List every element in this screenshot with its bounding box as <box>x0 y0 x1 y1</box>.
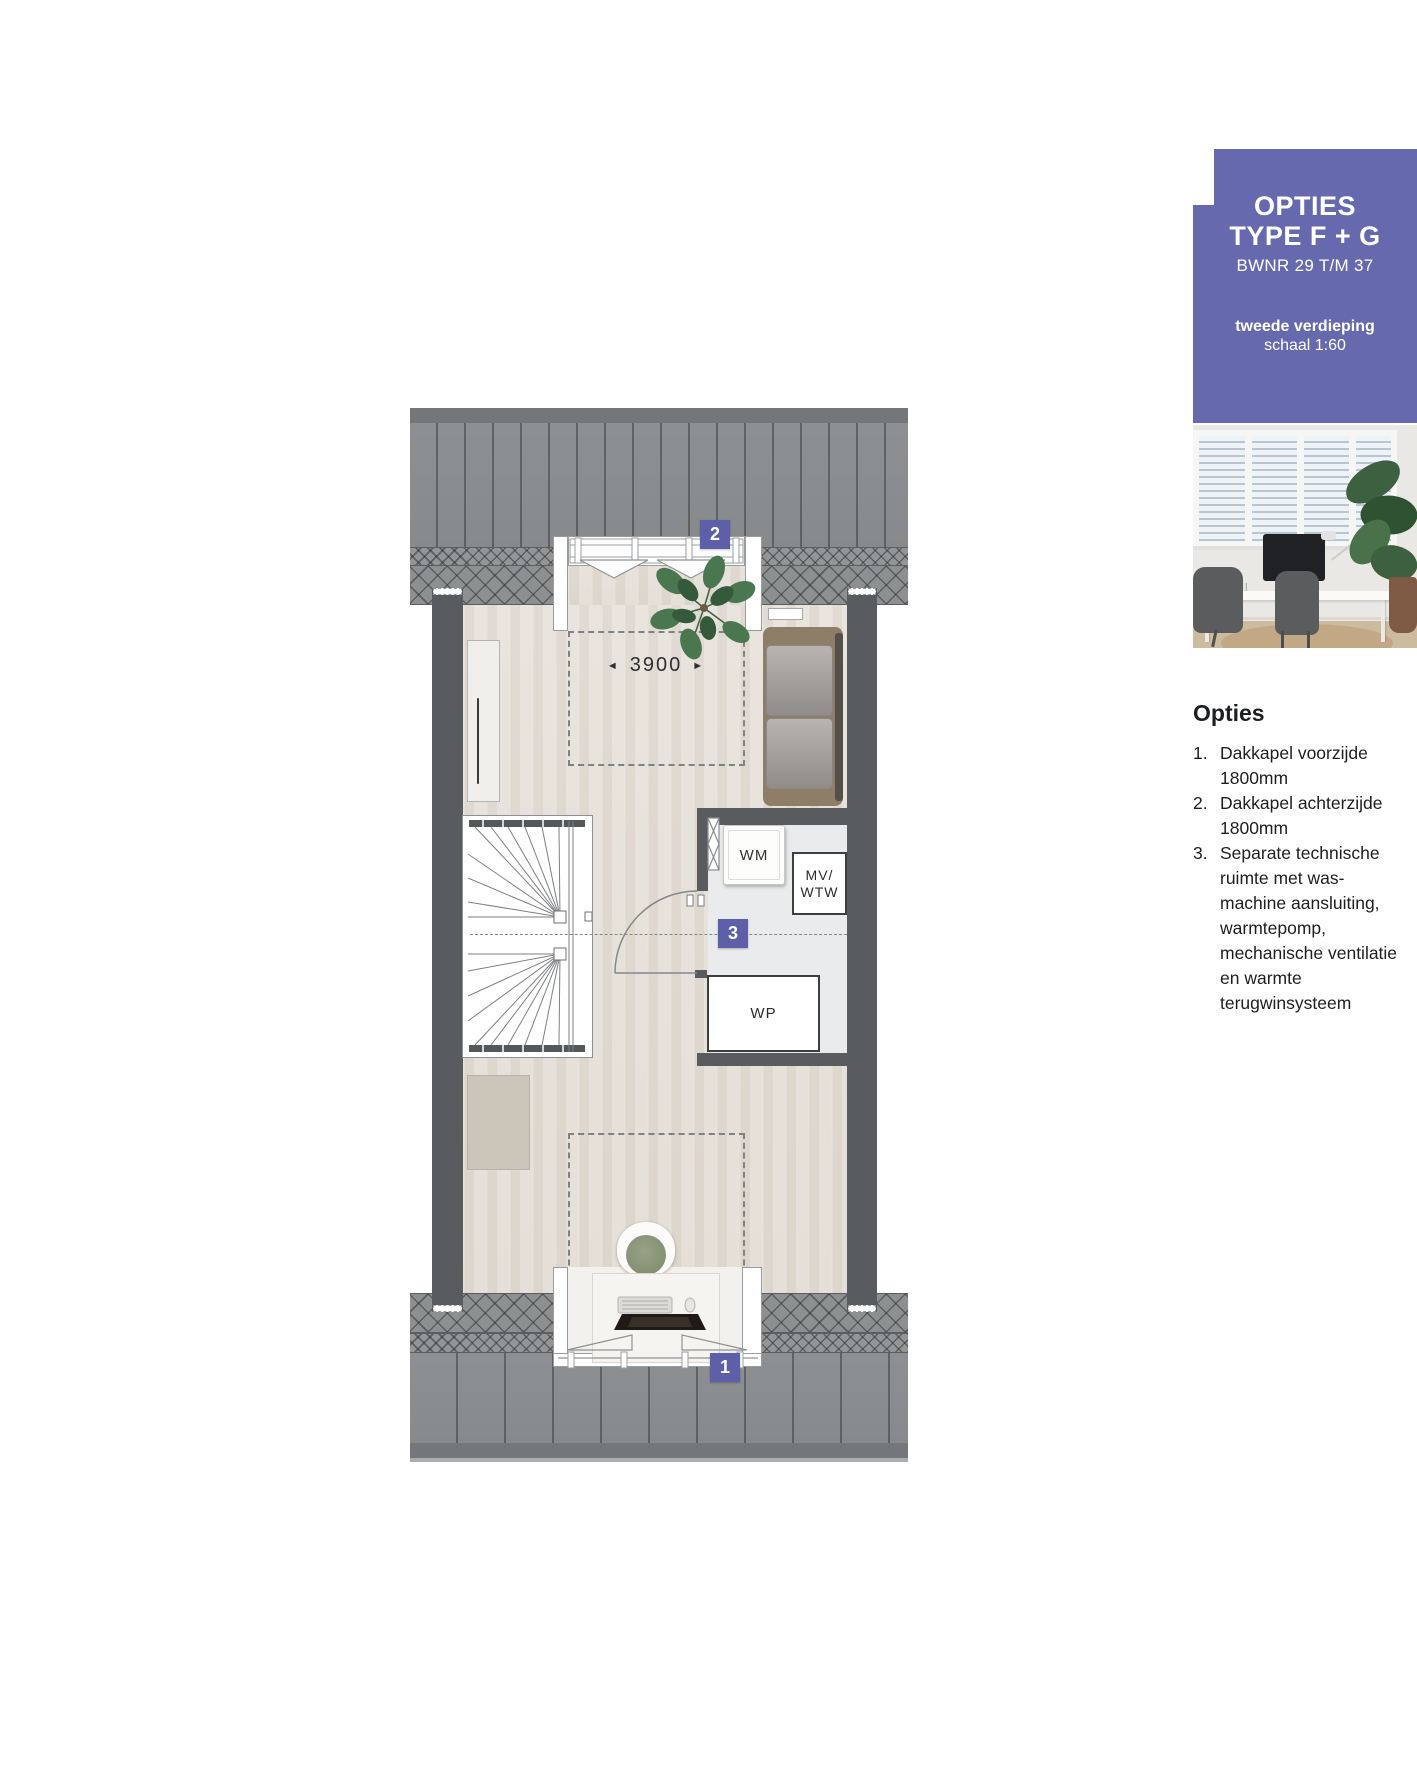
washing-machine-lid <box>728 830 780 880</box>
photo-chair-left <box>1193 567 1243 633</box>
photo-window-mullion <box>1297 436 1304 542</box>
photo-chair-center <box>1275 571 1319 635</box>
option-text: Separate technische ruimte met was-machi… <box>1220 841 1410 1016</box>
floor-plan: ◄ 3900 ► <box>410 408 908 1462</box>
panel-scale-label: schaal 1:60 <box>1193 336 1417 355</box>
photo-window-mullion <box>1245 436 1252 542</box>
option-marker-3: 3 <box>718 919 748 948</box>
heat-pump-label: WP <box>750 1005 776 1022</box>
panel-bwnr: BWNR 29 T/M 37 <box>1193 256 1417 276</box>
wall-left-cap-bottom <box>433 1305 462 1312</box>
option-item-1: 1. Dakkapel voorzijde 1800mm <box>1193 741 1417 791</box>
panel-title-line2: TYPE F + G <box>1193 221 1417 252</box>
wall-left-cap-top <box>433 588 462 595</box>
dimension-arrow-left: ◄ <box>607 660 620 672</box>
option-marker-2: 2 <box>700 520 730 549</box>
option-number: 2. <box>1193 791 1220 841</box>
photo-chair-leg <box>1281 631 1284 648</box>
option-item-3: 3. Separate technische ruimte met was-ma… <box>1193 841 1417 1016</box>
staircase-treads <box>463 816 592 1057</box>
photo-plant-pot <box>1389 577 1417 633</box>
photo-chair-leg <box>1307 631 1310 648</box>
option-number: 1. <box>1193 741 1220 791</box>
desk <box>592 1273 720 1363</box>
washing-machine: WM <box>723 825 785 885</box>
options-list: Opties 1. Dakkapel voorzijde 1800mm 2. D… <box>1193 700 1417 1016</box>
dimension-label: ◄ 3900 ► <box>576 654 736 677</box>
options-heading: Opties <box>1193 700 1417 727</box>
desk-chair-seat <box>626 1235 666 1275</box>
photo-desk-leg <box>1381 600 1385 642</box>
roof-surface-top <box>410 423 908 547</box>
wardrobe-handle <box>477 698 479 784</box>
dimension-value: 3900 <box>630 654 683 677</box>
heat-pump-unit: WP <box>707 975 820 1052</box>
title-panel: OPTIES TYPE F + G BWNR 29 T/M 37 tweede … <box>1193 149 1417 423</box>
dormer-top-jamb-left <box>553 536 568 631</box>
rug <box>467 1075 530 1170</box>
sofa-cushion-bottom <box>766 718 833 789</box>
mv-wtw-unit: MV/WTW <box>792 852 847 915</box>
wall-right <box>847 588 877 1312</box>
tech-room-wall-top <box>697 808 877 825</box>
interior-photo <box>1193 425 1417 648</box>
staircase <box>462 815 593 1058</box>
walk-line <box>470 934 847 935</box>
panel-title-line1: OPTIES <box>1193 191 1417 221</box>
door-hinge-block <box>695 970 707 978</box>
tech-room-wall-bottom <box>697 1053 877 1066</box>
roof-eave-bottom <box>410 1443 908 1458</box>
brochure-page: ◄ 3900 ► <box>0 0 1417 1772</box>
option-marker-1: 1 <box>710 1353 740 1382</box>
sofa-backrest <box>835 633 843 801</box>
roof-gutter-line <box>410 1458 908 1462</box>
dimension-arrow-right: ► <box>692 660 705 672</box>
option-text: Dakkapel voorzijde 1800mm <box>1220 741 1410 791</box>
option-number: 3. <box>1193 841 1220 1016</box>
wall-shelf <box>768 608 803 620</box>
wall-left <box>432 588 463 1312</box>
roof-ridge-top <box>410 408 908 423</box>
option-text: Dakkapel achterzijde 1800mm <box>1220 791 1410 841</box>
wall-right-cap-bottom <box>848 1305 876 1312</box>
dimension-box-top <box>568 631 745 766</box>
dormer-bottom-jamb-right <box>742 1267 762 1367</box>
tech-room-wall-left <box>697 825 708 891</box>
wall-right-cap-top <box>848 588 876 595</box>
wardrobe <box>467 640 500 802</box>
dormer-top-jamb-right <box>745 536 762 631</box>
option-item-2: 2. Dakkapel achterzijde 1800mm <box>1193 791 1417 841</box>
sofa-cushion-top <box>766 645 833 716</box>
dormer-bottom-jamb-left <box>553 1267 568 1367</box>
panel-floor-label: tweede verdieping <box>1193 318 1417 336</box>
mv-wtw-label: MV/WTW <box>801 867 839 901</box>
photo-lamp-head <box>1321 531 1336 540</box>
